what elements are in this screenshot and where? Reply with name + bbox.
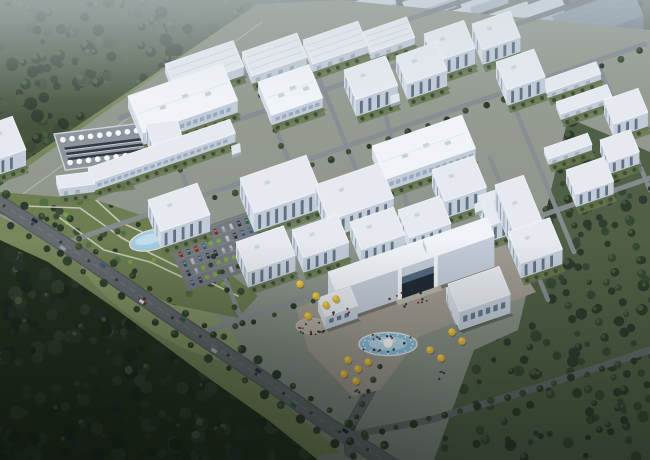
utility-tank-top (116, 131, 119, 134)
block-mid-a-lawn-tree (389, 107, 393, 111)
shed-right-b-lawn-tree (565, 120, 569, 124)
utility-tank-top (125, 130, 128, 133)
block-mid-a-lawn-tree (379, 110, 383, 114)
industrial-park-aerial-rendering (0, 0, 650, 460)
utility-tank-top (98, 133, 101, 136)
big-warehouse-a-lawn-tree (232, 116, 236, 120)
tree-highlight (33, 134, 39, 140)
street-tree (483, 102, 490, 109)
block-right-a-lawn-tree (511, 106, 515, 110)
sky-haze (0, 0, 650, 100)
utility-tank-top (88, 134, 91, 137)
big-warehouse-b-lawn-tree (314, 112, 318, 116)
shed-right-b-lawn-tree (593, 110, 597, 114)
tree-highlight (565, 131, 571, 137)
shed-right-b-lawn-tree (584, 114, 588, 118)
block-mid-a-lawn-tree (370, 113, 374, 117)
utility-tank-top (107, 132, 110, 135)
utility-tank-top (70, 136, 73, 139)
big-warehouse-b-lawn-tree (295, 119, 299, 123)
big-warehouse-b-lawn-tree (276, 125, 280, 129)
tree-highlight (43, 132, 48, 137)
block-mid-a-window-bay (360, 100, 363, 114)
utility-tank-top (79, 135, 82, 138)
block-mid-b-lawn-tree (412, 100, 416, 104)
block-mid-a-lawn-tree (360, 117, 364, 121)
block-right-a-lawn-tree (521, 103, 525, 107)
block-far-a-window-bay (635, 118, 638, 129)
street-tree-highlight (405, 129, 408, 132)
big-warehouse-b-lawn-tree (285, 122, 289, 126)
block-far-a-lawn-tree (637, 132, 641, 136)
street-tree-highlight (463, 108, 466, 111)
big-warehouse-b-lawn-tree (304, 116, 308, 120)
scene-svg (0, 0, 650, 460)
corner-vignette (0, 140, 650, 460)
street-tree-highlight (386, 137, 389, 140)
shed-right-b-lawn-tree (575, 117, 579, 121)
